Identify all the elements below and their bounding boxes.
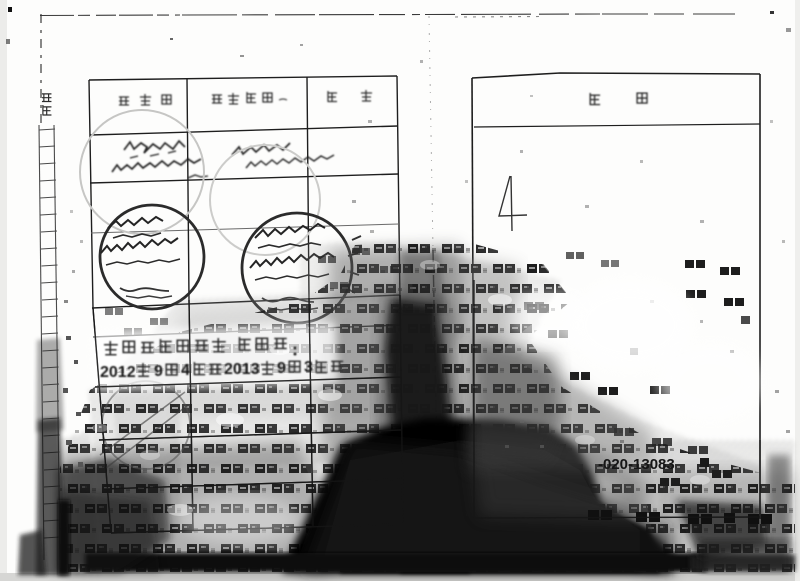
svg-text:2012: 2012 [100,364,136,381]
svg-text:-020-13083: -020-13083 [598,456,675,473]
svg-text:3: 3 [304,359,313,376]
svg-text:9: 9 [154,363,163,380]
svg-text:4: 4 [181,362,190,379]
svg-text:9: 9 [277,360,286,377]
svg-text:2013: 2013 [224,361,260,378]
